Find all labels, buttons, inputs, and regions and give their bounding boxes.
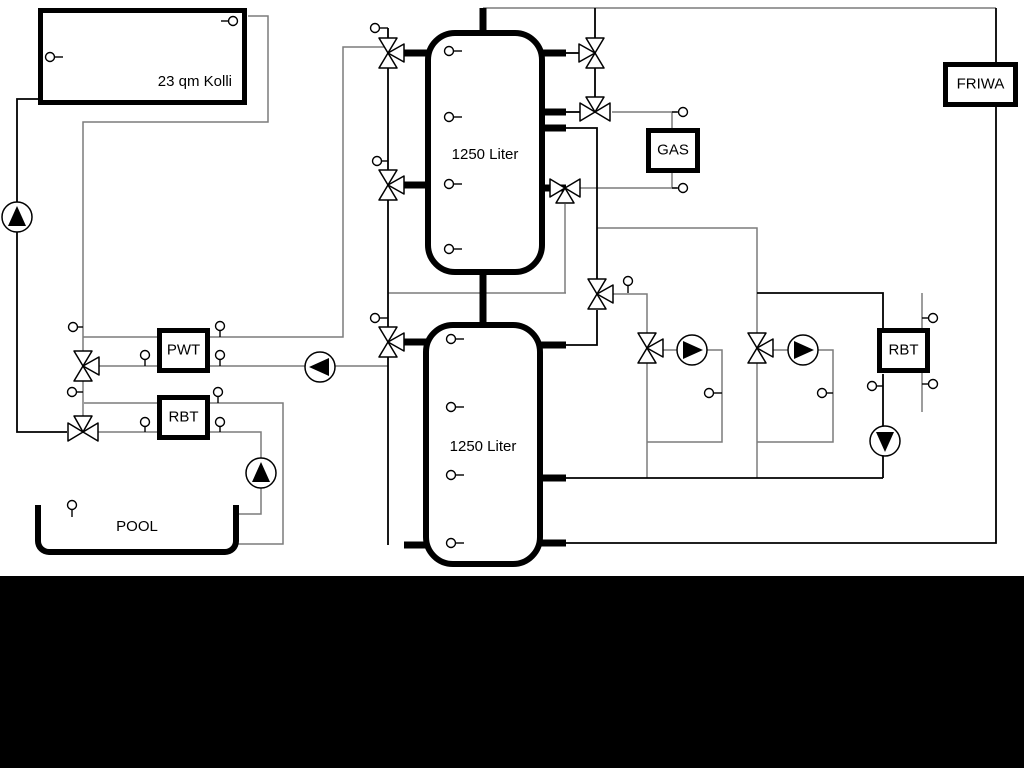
pump-pool <box>246 458 276 488</box>
sensor-valve-line-top <box>371 24 389 33</box>
sensor-pwt-top-right <box>216 322 225 338</box>
sensor-pwt-bottom-left <box>141 351 150 367</box>
sensors <box>46 17 938 548</box>
sensor-circuit2-return <box>818 389 834 398</box>
valve-tank2-left <box>379 327 404 357</box>
pump-rbt-right <box>870 426 900 456</box>
sensor-pwt-bottom-right <box>216 351 225 367</box>
sensor-tank1-3 <box>445 180 463 189</box>
sensor-collector-top <box>221 17 238 26</box>
valve-pwt-mixer <box>74 351 99 381</box>
sensor-collector-left <box>46 53 64 62</box>
sensor-tank2-2 <box>447 403 465 412</box>
sensor-rbtright-rail-bottom <box>922 380 938 389</box>
sensor-gas-top <box>672 108 688 117</box>
schematic-canvas: 23 qm Kolli 1250 Liter 1250 Liter GAS FR… <box>0 0 1024 768</box>
sensor-rbtright-left <box>868 382 884 391</box>
valve-circuit1-mixer <box>638 333 663 363</box>
valve-pool-mixer <box>68 416 98 441</box>
sensor-tank1-2 <box>445 113 463 122</box>
sensor-rbtleft-top-right <box>214 388 223 404</box>
valve-circuit2-mixer <box>748 333 773 363</box>
sensor-tank2-1 <box>447 335 465 344</box>
valve-tank1-left-bottom <box>379 170 404 200</box>
sensor-rbtright-rail-top <box>922 314 938 323</box>
sensor-left-riser-lower <box>68 388 84 397</box>
valve-heating-mixer <box>588 279 613 309</box>
sensor-rbtleft-bottom-left <box>141 418 150 433</box>
pump-pwt-charge <box>305 352 335 382</box>
valve-gas-return <box>550 179 580 203</box>
sensor-left-riser-upper <box>69 323 84 332</box>
valve-tank1-right-top <box>579 38 604 68</box>
sensor-valve-line-mid <box>373 157 389 166</box>
valve-gas-supply <box>580 97 610 121</box>
bottom-black-band <box>0 576 1024 768</box>
sensor-pool <box>68 501 77 518</box>
sensor-mixer-branch <box>624 277 633 294</box>
sensor-tank1-1 <box>445 47 463 56</box>
sensor-tank1-4 <box>445 245 463 254</box>
sensor-tank2-3 <box>447 471 465 480</box>
pump-heating-circuit2 <box>788 335 818 365</box>
sensor-valve-line-low <box>371 314 389 323</box>
sensor-tank2-4 <box>447 539 465 548</box>
pump-solar <box>2 202 32 232</box>
sensor-circuit1-return <box>705 389 723 398</box>
sensor-gas-bottom <box>672 184 688 193</box>
sensor-rbtleft-bottom-right <box>216 418 225 433</box>
valve-tank1-left-top <box>379 38 404 68</box>
pump-heating-circuit1 <box>677 335 707 365</box>
